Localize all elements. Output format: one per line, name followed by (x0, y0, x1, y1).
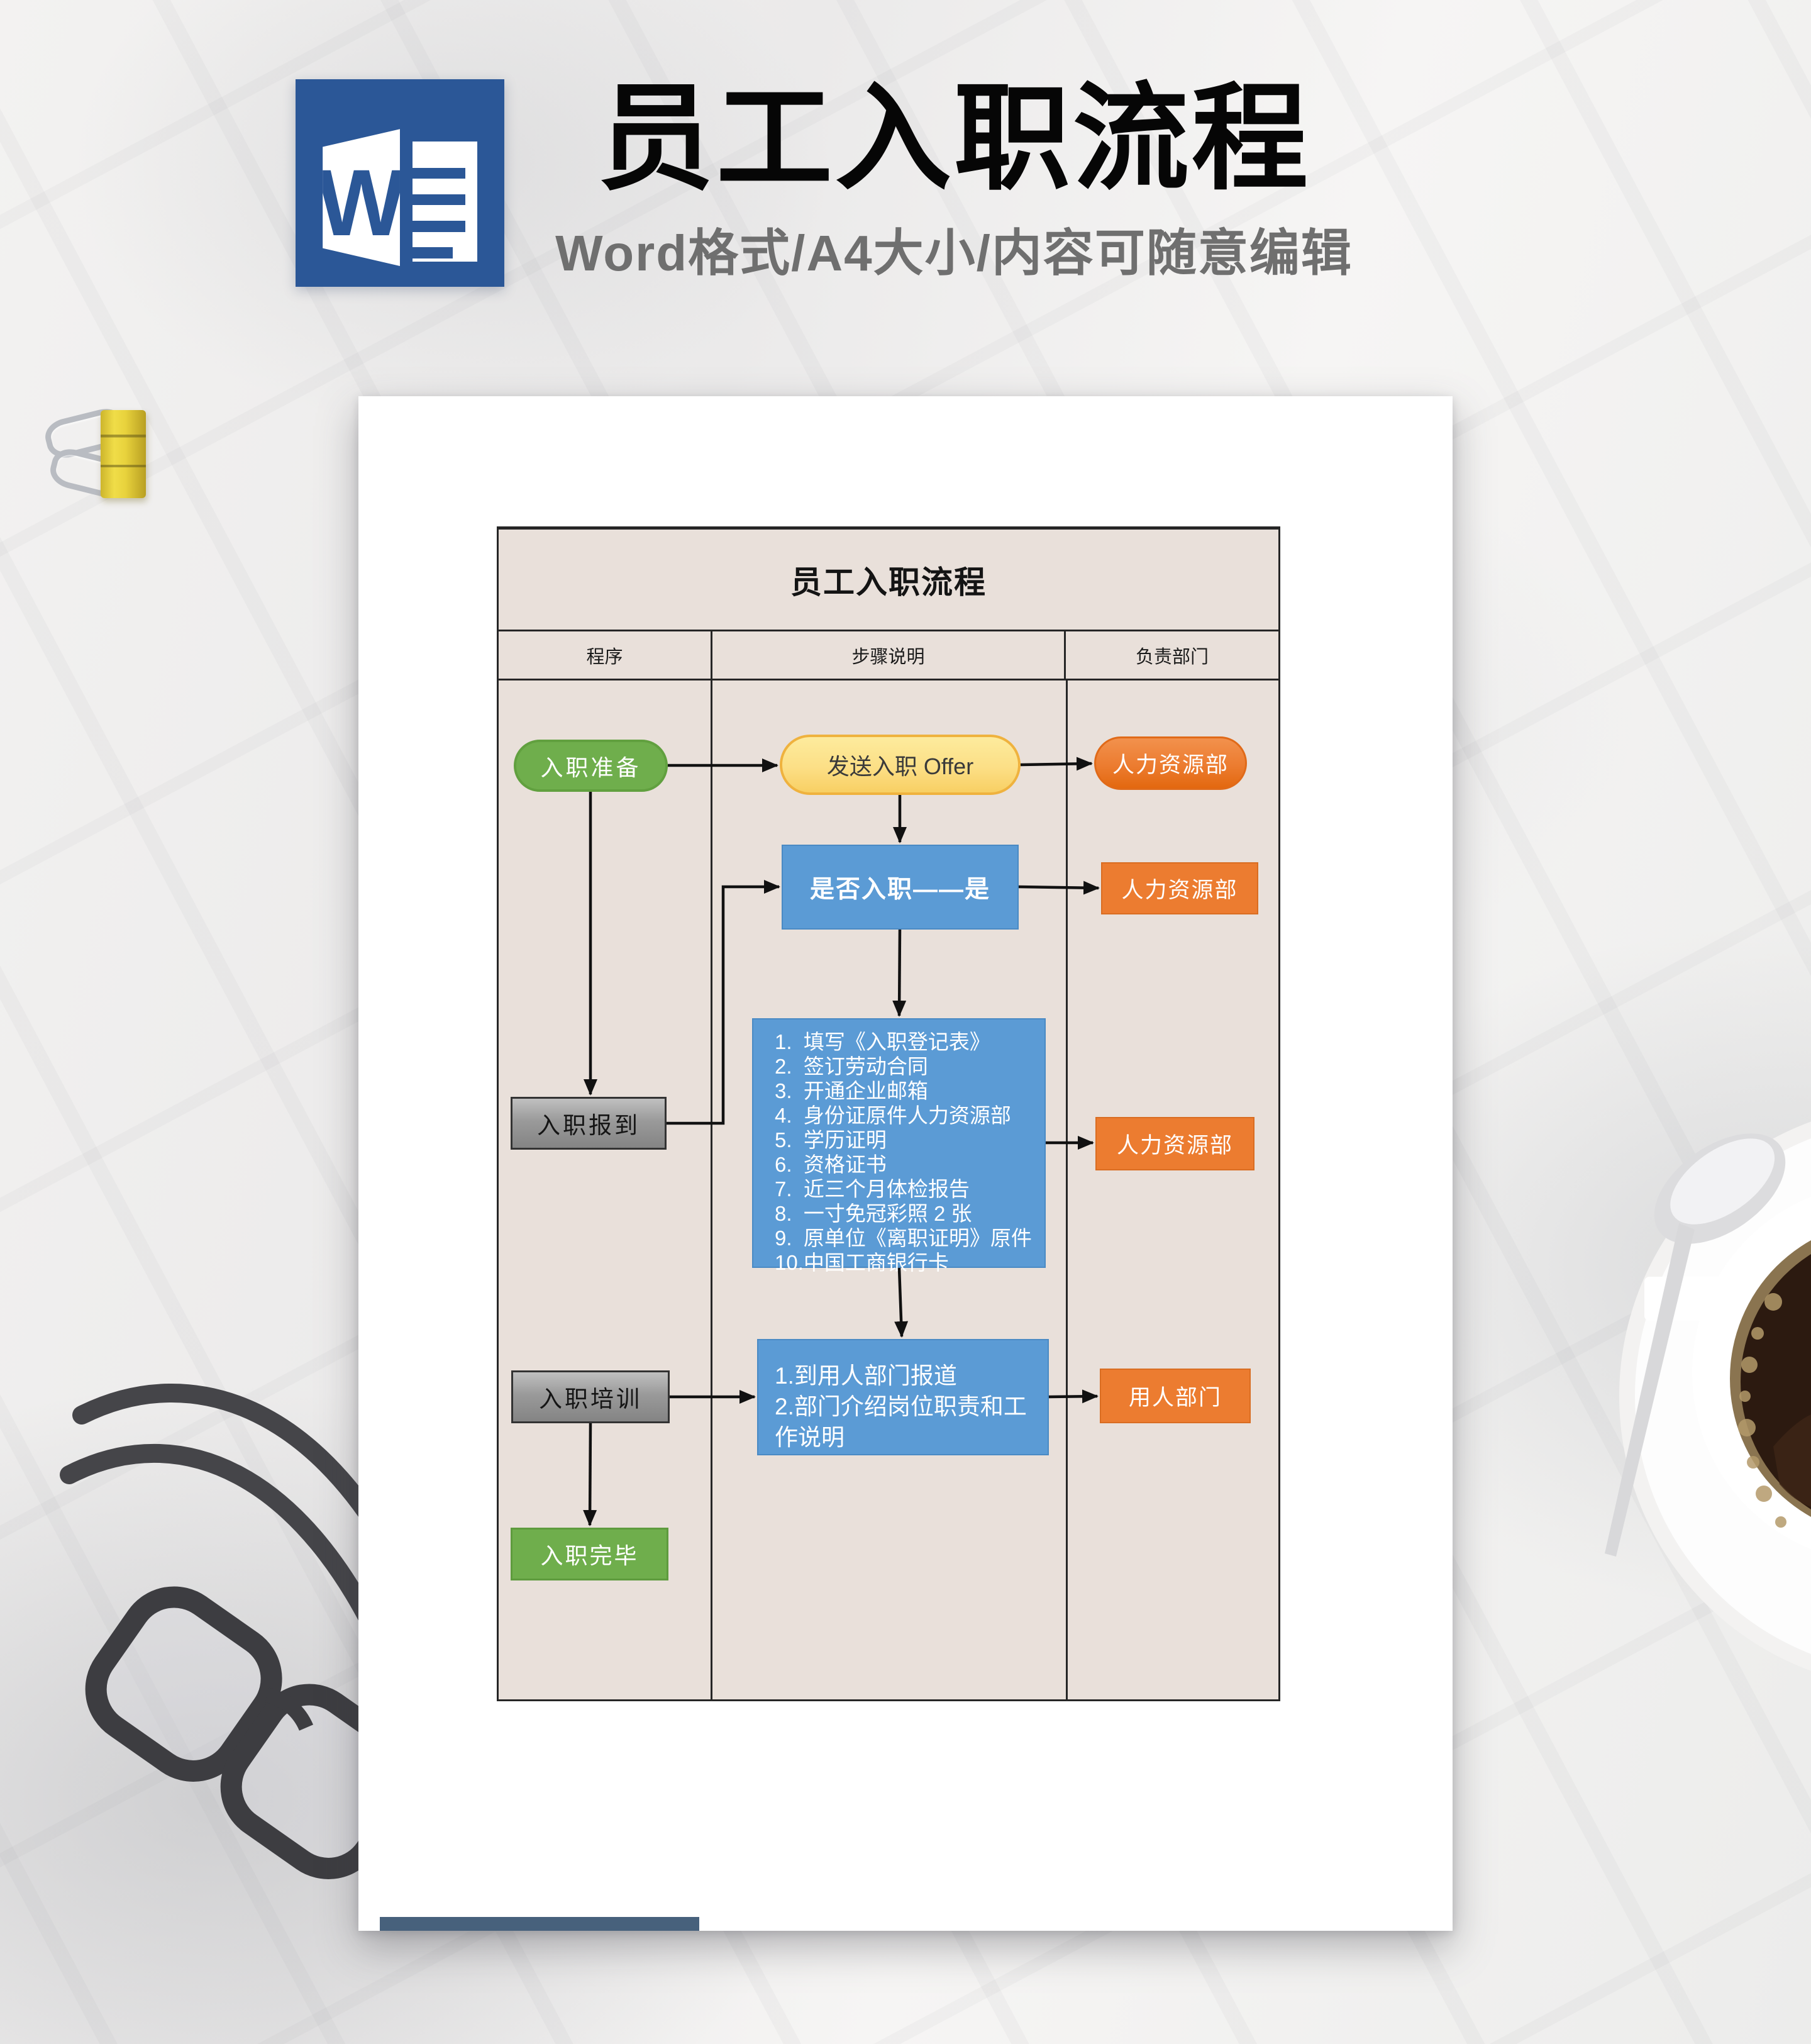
page-footer-bar (380, 1917, 699, 1931)
column-header-procedure: 程序 (499, 631, 711, 679)
node-onboarding-prepare: 入职准备 (514, 740, 668, 792)
word-logo-line-icon (401, 168, 465, 179)
node-onboarding-complete: 入职完毕 (511, 1528, 668, 1580)
node-onboarding-training: 入职培训 (511, 1370, 670, 1423)
checklist-item: 7. 近三个月体检报告 (775, 1177, 970, 1201)
node-hr-department-3: 人力资源部 (1095, 1117, 1254, 1170)
template-preview: W 员工入职流程 Word格式/A4大小/内容可随意编辑 (0, 0, 1811, 2044)
flowchart-title-row: 员工入职流程 (499, 530, 1278, 631)
checklist-item: 1. 填写《入职登记表》 (775, 1030, 990, 1054)
checklist-item: 4. 身份证原件人力资源部 (775, 1103, 1011, 1128)
column-divider (1066, 680, 1068, 1699)
node-department-report: 1.到用人部门报道 2.部门介绍岗位职责和工作说明 (757, 1339, 1049, 1455)
node-hr-department-2: 人力资源部 (1101, 862, 1258, 914)
brand-text: 员工入职流程 Word格式/A4大小/内容可随意编辑 (514, 75, 1394, 286)
word-logo-line-icon (401, 194, 465, 205)
department-report-line: 2.部门介绍岗位职责和工作说明 (775, 1391, 1036, 1453)
word-logo-letter: W (317, 148, 406, 257)
word-logo-line-icon (401, 247, 452, 258)
column-header-department: 负责部门 (1066, 631, 1278, 679)
document-page: 员工入职流程 程序 步骤说明 负责部门 入职准备 发送入职 Offer 人力资源… (358, 396, 1453, 1931)
word-logo-icon: W (296, 79, 504, 287)
flowchart-body: 入职准备 发送入职 Offer 人力资源部 是否入职——是 人力资源部 入职报到… (499, 680, 1278, 1699)
column-header-steps: 步骤说明 (711, 631, 1066, 679)
checklist-item: 5. 学历证明 (775, 1128, 887, 1152)
checklist-item: 3. 开通企业邮箱 (775, 1079, 928, 1103)
word-logo-line-icon (401, 221, 465, 231)
checklist-item: 10.中国工商银行卡 (775, 1250, 949, 1275)
checklist-item: 2. 签订劳动合同 (775, 1054, 928, 1079)
flowchart-table: 员工入职流程 程序 步骤说明 负责部门 入职准备 发送入职 Offer 人力资源… (497, 526, 1280, 1701)
coffee-cup-decoration (1585, 1094, 1811, 1711)
page-title: 员工入职流程 (514, 75, 1394, 204)
checklist-item: 9. 原单位《离职证明》原件 (775, 1226, 1032, 1250)
checklist-item: 8. 一寸免冠彩照 2 张 (775, 1201, 972, 1226)
column-divider (711, 680, 712, 1699)
node-decision-join: 是否入职——是 (782, 845, 1019, 930)
node-employing-department: 用人部门 (1100, 1369, 1251, 1423)
flowchart-title: 员工入职流程 (790, 557, 987, 603)
binder-clip (25, 396, 189, 516)
department-report-line: 1.到用人部门报道 (775, 1360, 957, 1391)
node-report-for-duty: 入职报到 (511, 1097, 667, 1150)
page-subtitle: Word格式/A4大小/内容可随意编辑 (514, 213, 1394, 286)
flowchart-header-row: 程序 步骤说明 负责部门 (499, 631, 1278, 680)
binder-clip-body (101, 410, 146, 498)
word-logo-sheet (413, 142, 477, 262)
node-onboarding-checklist: 1. 填写《入职登记表》 2. 签订劳动合同 3. 开通企业邮箱 4. 身份证原… (752, 1018, 1046, 1268)
word-logo-page: W (323, 129, 400, 266)
node-send-offer: 发送入职 Offer (780, 735, 1021, 795)
node-hr-department-1: 人力资源部 (1094, 736, 1247, 790)
checklist-item: 6. 资格证书 (775, 1152, 887, 1177)
